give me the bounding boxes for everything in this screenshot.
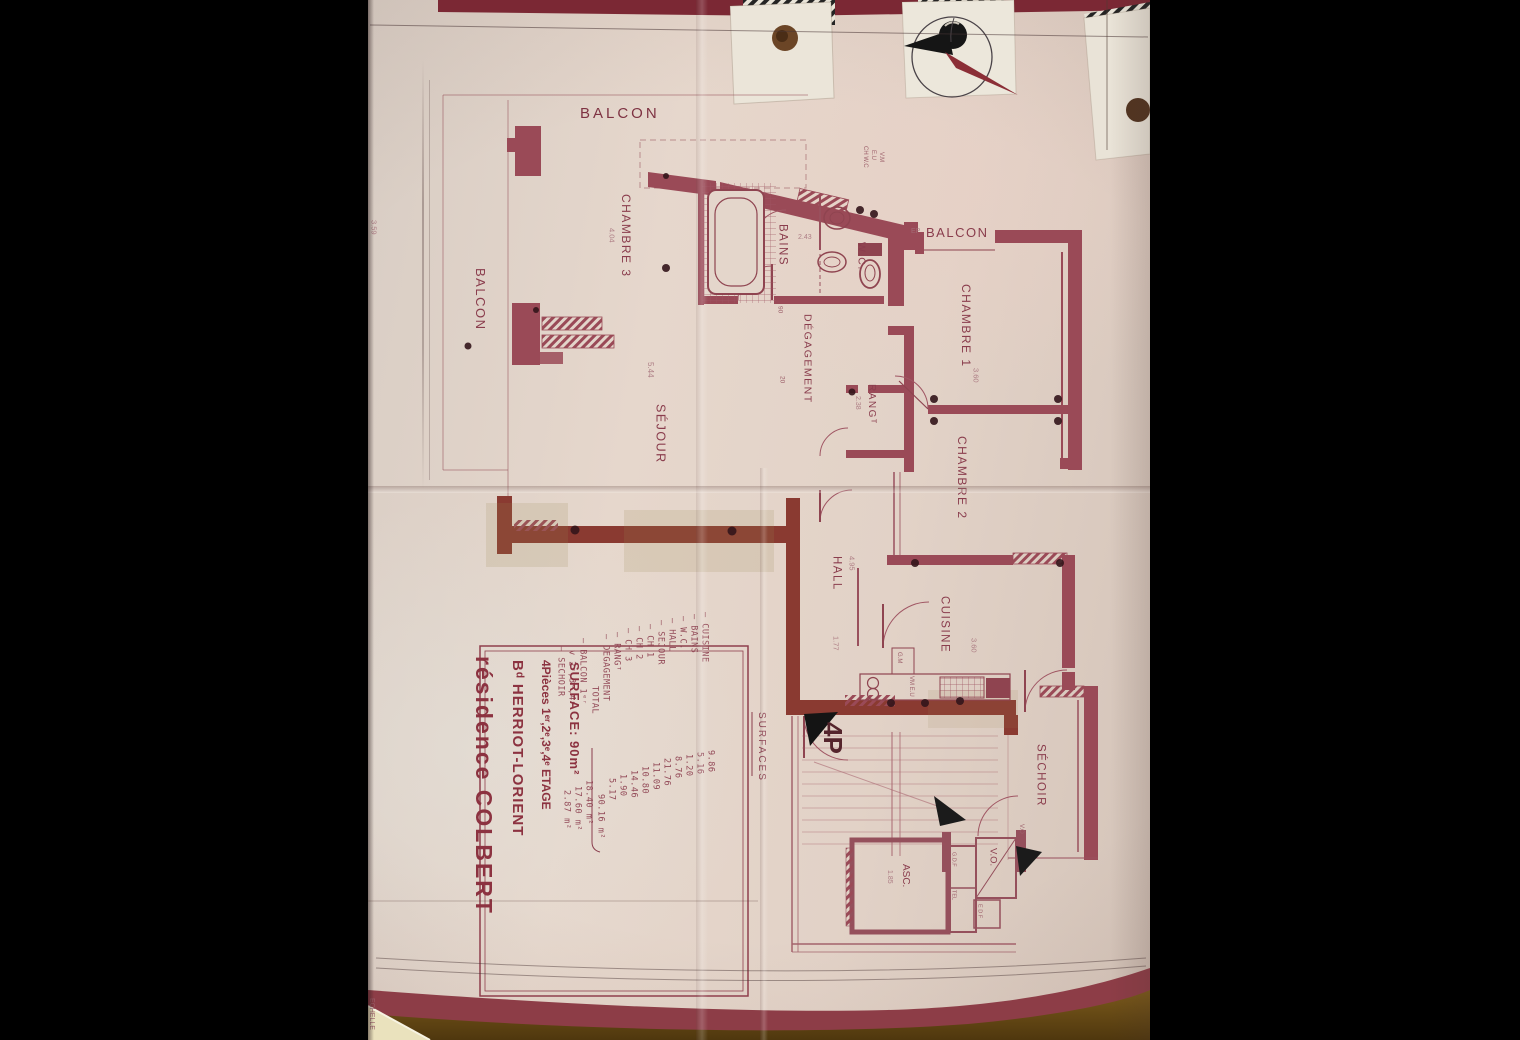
surfaces-row-value: 11.09 (651, 762, 660, 790)
duct-label-chwc: CH W.C (862, 146, 868, 168)
dim-hall: 1.77 (832, 636, 840, 651)
gm-annotation: G.M (896, 652, 902, 663)
ep-annotation: EP (911, 228, 920, 235)
type-mark-4p: 4P (820, 722, 846, 754)
surfaces-row-value: 14.46 (629, 770, 638, 798)
room-label-chambre3: CHAMBRE 3 (620, 194, 632, 278)
surfaces-row-value: 8.76 (673, 756, 682, 778)
surfaces-row-label: — CH 1 (645, 624, 654, 658)
surfaces-total-value: 90.16 m² (596, 794, 605, 839)
room-label-balcon-ep: BALCON (926, 226, 988, 239)
surfaces-row-value: 1.20 (684, 754, 693, 776)
vmeu-annotation: VM E.U (908, 676, 914, 697)
gdf-annotation: G.D.F (950, 852, 956, 867)
room-label-sechoir: SÉCHOIR (1034, 744, 1046, 807)
surfaces-row-label: — DEGAGEMENT (601, 634, 610, 701)
room-label-asc: ASC. (900, 864, 910, 887)
surfaces-row-label: — W.C. (678, 616, 687, 650)
surfaces-row-label: — RANGᵀ (612, 632, 621, 671)
surfaces-row-value: 5.17 (607, 778, 616, 800)
surfaces-row-value: 18.40 m² (584, 780, 593, 825)
surfaces-row-value: 17.60 m² (573, 786, 582, 831)
surfaces-row-label: — SECHOIR (556, 646, 565, 697)
room-label-wc: W.C. (856, 242, 867, 271)
duct-label-eu: E.U (870, 150, 876, 160)
surfaces-total-label: TOTAL (590, 686, 599, 714)
surfaces-row-label: — CH 2 (634, 626, 643, 660)
dim-deg-w: 90 (776, 306, 783, 313)
dim-bains: 2.43 (798, 234, 812, 241)
titleblock-line2: Bᵈ HERRIOT-LORIENT (510, 660, 525, 836)
surfaces-row-value: 10.80 (640, 766, 649, 794)
letterbox-left (0, 0, 368, 1040)
edf-annotation: E D F (976, 904, 982, 918)
tape-patches (730, 0, 1150, 160)
surfaces-row-value: 1.90 (618, 774, 627, 796)
letterbox-right (1150, 0, 1520, 1040)
dim-chambre1: 3.60 (972, 368, 980, 383)
dim-cuisine: 3.60 (970, 638, 978, 653)
echelle-annotation: ECHELLE (368, 998, 375, 1030)
dim-deg-n: 20 (778, 376, 785, 383)
room-label-balcon-left: BALCON (474, 268, 487, 330)
room-label-bains: BAINS (776, 224, 788, 266)
surfaces-row-label: — HALL (667, 618, 676, 652)
titleblock-line1: résidence COLBERT (472, 656, 495, 915)
tel-annotation: TEL (950, 890, 956, 900)
surfaces-row-label: — CUISINE (700, 612, 709, 663)
stair-arrow-icon (934, 796, 966, 826)
surfaces-row-value: 2.87 m² (562, 790, 571, 829)
surfaces-header: SURFACES (756, 712, 766, 782)
titleblock-line3: 4Pièces 1ᵉʳ,2ᵉ,3ᵉ,4ᵉ ETAGE (540, 660, 552, 810)
dim-chambre2: 4.95 (848, 556, 856, 571)
dim-margin-left: 3.59 (370, 220, 378, 235)
room-label-balcon-top: BALCON (580, 106, 660, 121)
photo-of-floor-plan: BALCON BALCON CHAMBRE 3 4.04 SÉJOUR 5.44… (0, 0, 1520, 1040)
room-label-cuisine: CUISINE (938, 596, 950, 653)
vo-arrow-icon (1016, 846, 1042, 876)
surfaces-row-label: — SEJOUR (656, 620, 665, 665)
room-label-sejour: SÉJOUR (654, 404, 667, 464)
surfaces-row-value: 5.16 (695, 752, 704, 774)
room-label-vo: V.O. (988, 848, 998, 866)
bathtub-icon (702, 183, 776, 303)
surfaces-row-label: — BAINS (689, 614, 698, 653)
surfaces-row-label: — CH 3 (623, 628, 632, 662)
room-label-hall: HALL (830, 556, 842, 591)
bottom-margin-lines (376, 958, 1146, 981)
room-label-rang: RANGᵀ (866, 384, 876, 425)
surfaces-row-value: 9.86 (706, 750, 715, 772)
dim-sejour: 5.44 (646, 362, 654, 378)
room-label-degagement: DÉGAGEMENT (802, 314, 813, 404)
dim-rang: 2.38 (854, 396, 861, 410)
room-label-chambre1: CHAMBRE 1 (960, 284, 972, 368)
titleblock-line4: SURFACE: 90m² (568, 662, 581, 775)
dim-asc: 1.85 (886, 870, 893, 884)
vo-small-annotation: V.O (1018, 824, 1024, 834)
room-label-chambre2: CHAMBRE 2 (956, 436, 968, 520)
surfaces-row-value: 21.76 (662, 758, 671, 786)
duct-label-vm: V.M (878, 152, 884, 162)
dim-chambre3: 4.04 (608, 228, 616, 243)
blueprint-paper: BALCON BALCON CHAMBRE 3 4.04 SÉJOUR 5.44… (368, 0, 1150, 1040)
